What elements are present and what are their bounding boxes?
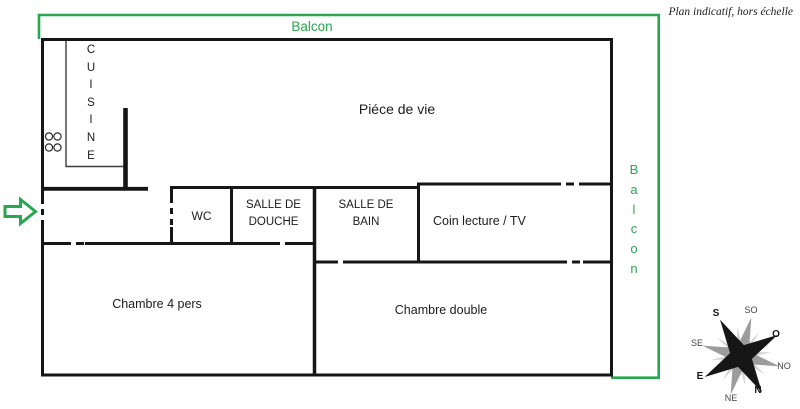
balcony-top-label: Balcon <box>272 19 352 34</box>
room-label-wc: WC <box>172 209 231 223</box>
room-label-chambre-double: Chambre double <box>361 303 521 317</box>
compass-label-no: NO <box>773 361 795 371</box>
room-label-chambre-4-pers: Chambre 4 pers <box>79 297 235 311</box>
plan-note: Plan indicatif, hors échelle <box>668 6 793 18</box>
compass-label-n: N <box>747 385 769 396</box>
room-label-cuisine: C U I S I N E <box>83 42 99 165</box>
salle-de-bain-line1: SALLE DE <box>314 197 418 214</box>
room-label-salle-de-douche: SALLE DE DOUCHE <box>232 197 315 230</box>
floor-plan-canvas: Plan indicatif, hors échelle Balcon B a … <box>0 0 800 409</box>
compass-label-so: SO <box>740 305 762 315</box>
room-label-coin-lecture-tv: Coin lecture / TV <box>433 214 526 228</box>
compass-label-e: E <box>689 371 711 382</box>
balcony-right-label: B a l c o n <box>626 160 642 279</box>
stove-burners-icon <box>45 133 61 151</box>
compass-label-se: SE <box>686 338 708 348</box>
entrance-arrow-icon <box>5 200 36 224</box>
salle-de-douche-line2: DOUCHE <box>232 214 315 231</box>
compass-label-o: O <box>765 329 787 340</box>
salle-de-douche-line1: SALLE DE <box>232 197 315 214</box>
room-label-piece-de-vie: Piéce de vie <box>327 101 467 117</box>
room-label-salle-de-bain: SALLE DE BAIN <box>314 197 418 230</box>
salle-de-bain-line2: BAIN <box>314 214 418 231</box>
compass-label-s: S <box>705 308 727 319</box>
compass-label-ne: NE <box>720 393 742 403</box>
